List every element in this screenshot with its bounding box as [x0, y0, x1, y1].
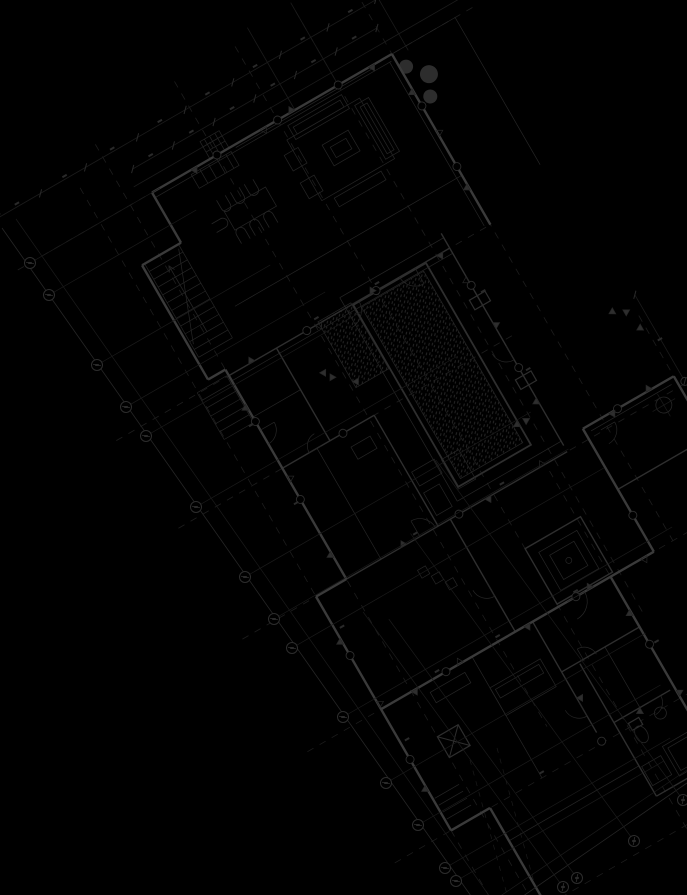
door-swing-icon [492, 346, 514, 368]
node-circle-icon [451, 161, 462, 172]
stair-stringer [227, 376, 254, 423]
furniture-rect [330, 138, 352, 157]
furniture-rect [300, 175, 323, 199]
dim-text-smudge [539, 770, 544, 774]
dimension-line [0, 0, 428, 222]
wall-thin [200, 169, 208, 183]
wall-thin [390, 62, 485, 226]
chair-icon [234, 226, 250, 244]
grid-extension-line [445, 738, 670, 868]
door-arrow-icon [462, 184, 471, 193]
door-arrow-icon [320, 369, 329, 378]
stair-tread [215, 407, 244, 424]
stair-tread [149, 252, 183, 272]
node-circle-icon [338, 428, 349, 439]
wall-medium [276, 348, 330, 441]
door-arrow-icon [635, 708, 644, 717]
dim-tick [324, 23, 332, 31]
grid-line [80, 188, 539, 895]
dim-tick [181, 106, 189, 114]
dim-text-smudge [495, 634, 500, 638]
grid-line [550, 471, 611, 577]
furniture-rect [431, 572, 443, 584]
grid-extension-line [386, 633, 646, 783]
wall-thin [605, 647, 640, 708]
grid-extension-line [363, 612, 563, 887]
wall-medium [580, 664, 657, 797]
wall-thin [155, 61, 391, 198]
wall-thick [674, 376, 687, 499]
wall-thick [225, 370, 346, 580]
dim-text-smudge [157, 119, 162, 123]
plan-group [0, 0, 687, 895]
wall-thick [316, 579, 346, 597]
door-arrow-icon [327, 372, 336, 381]
grid-extension-line [274, 449, 568, 619]
furniture-rect [424, 484, 453, 516]
dim-text-smudge [434, 669, 439, 673]
plant-icon [417, 62, 442, 87]
node-circle-icon [513, 362, 524, 373]
dim-text-smudge [300, 36, 305, 40]
wall-thin [226, 154, 234, 168]
dim-text-smudge [654, 639, 659, 643]
grid-line [327, 0, 673, 541]
door-swing-icon [649, 696, 668, 715]
stair-tread [167, 283, 201, 303]
wall-thin [443, 798, 467, 812]
stair-tread [163, 275, 197, 295]
grid-extension-line [146, 306, 371, 436]
dim-text-smudge [413, 531, 418, 535]
walls [90, 0, 687, 895]
dimension-line [635, 295, 687, 568]
sink-icon [652, 705, 668, 721]
dim-text-smudge [311, 59, 316, 63]
node-circle-icon [211, 150, 222, 161]
dim-text-smudge [110, 146, 115, 150]
furniture-rect [284, 147, 307, 171]
stair-tread [220, 415, 249, 432]
grid-extension-line [30, 188, 160, 263]
wall-thin [253, 390, 301, 418]
dim-text-smudge [205, 91, 210, 95]
dim-string-parallel [493, 770, 687, 895]
door-arrow-icon [635, 324, 644, 333]
wall-medium [656, 761, 687, 796]
node-circle-icon [644, 639, 655, 650]
stair-tread [176, 299, 210, 319]
door-arrow-icon [286, 105, 295, 114]
dim-tick [251, 94, 259, 102]
door-arrow-icon [643, 384, 652, 393]
dim-tick [373, 24, 381, 32]
door-arrow-icon [485, 496, 494, 505]
wall-thin [439, 791, 463, 805]
chair-icon [262, 210, 278, 228]
wall-thick [583, 376, 674, 429]
node-circle-icon [272, 115, 283, 126]
door-swing-icon [565, 702, 587, 724]
courtyard-square [550, 541, 588, 579]
grid-line [639, 316, 687, 554]
grid-extension-line [389, 619, 577, 878]
furniture-rect [495, 664, 543, 698]
courtyard-center [565, 556, 573, 564]
wall-thin [455, 18, 540, 165]
node-circle-icon [596, 736, 607, 747]
door-arrow-icon [246, 355, 255, 364]
grid-extension-line [343, 527, 672, 717]
dim-text-smudge [339, 625, 344, 629]
grid-extension-line [196, 357, 456, 507]
door-arrow-icon [420, 785, 429, 794]
dim-tick [291, 71, 299, 79]
dim-tick [229, 78, 237, 86]
dim-tick [169, 141, 177, 149]
door-arrow-icon [407, 89, 416, 98]
door-arrow-icon [577, 694, 586, 703]
node-circle-icon [333, 80, 344, 91]
door-swing-icon [473, 582, 495, 604]
door-arrow-icon [676, 687, 685, 696]
dim-tick [81, 163, 89, 171]
courtyard-square [525, 517, 612, 604]
dim-text-smudge [252, 64, 257, 68]
wall-thin [447, 805, 471, 819]
wall-thick [316, 597, 451, 831]
wall-thin [236, 68, 375, 148]
dim-tick [36, 189, 44, 197]
dim-text-smudge [62, 174, 67, 178]
dim-text-smudge [314, 316, 319, 320]
grid-extension-line [456, 761, 664, 881]
furniture-rect [351, 436, 377, 459]
stair-stringer [178, 244, 232, 338]
stair-tread [194, 330, 228, 350]
furniture-rect [642, 756, 672, 786]
staircase [128, 244, 274, 439]
door-arrow-icon [524, 623, 533, 632]
node-circle-icon [345, 650, 356, 661]
dim-text-smudge [270, 83, 275, 87]
door-arrow-icon [531, 398, 540, 407]
furniture [134, 21, 687, 863]
dim-text-smudge [189, 130, 194, 134]
dim-text-smudge [526, 367, 531, 371]
construction-lines [0, 0, 687, 829]
dim-text-smudge [293, 501, 298, 505]
stair-tread [202, 384, 231, 401]
stair-tread [224, 423, 253, 440]
door-arrow-icon [335, 638, 344, 647]
door-arrow-icon [369, 64, 378, 73]
cad-floor-plan-screenshot: Dark CAD architectural floor plan, rotat… [0, 0, 687, 895]
dim-text-smudge [499, 481, 504, 485]
stair-tread [211, 399, 240, 416]
dim-tick [129, 165, 137, 173]
stair-stringer [145, 264, 199, 358]
dim-tick [133, 133, 141, 141]
dim-text-smudge [352, 36, 357, 40]
grid-line [95, 144, 569, 895]
wall-thick [451, 808, 490, 831]
wall-thick [392, 54, 491, 225]
wall-thin [392, 18, 455, 55]
door-arrow-icon [584, 582, 593, 591]
door-arrow-icon [493, 320, 502, 329]
plan-dimension-marks [0, 0, 687, 895]
courtyard-square [539, 530, 599, 590]
node-circle-icon [627, 510, 638, 521]
dim-text-smudge [229, 106, 234, 110]
dim-tick [0, 213, 3, 221]
stair-tread [154, 260, 188, 280]
dim-text-smudge [404, 737, 409, 741]
door-arrow-icon [624, 610, 633, 619]
node-circle-icon [405, 754, 416, 765]
dim-tick [332, 47, 340, 55]
door-swing-icon [260, 422, 282, 444]
grid-line [395, 663, 687, 863]
furniture-rect [288, 95, 350, 140]
door-arrow-icon [325, 551, 334, 560]
wall-thick [142, 243, 181, 265]
dim-tick [631, 291, 639, 299]
stair-tread [172, 291, 206, 311]
node-circle-icon [466, 280, 477, 291]
dim-text-smudge [374, 281, 379, 285]
dim-text-smudge [348, 9, 353, 13]
floor-plan-canvas [0, 0, 687, 895]
grid-extension-line [436, 460, 683, 800]
grid-lines [0, 0, 687, 895]
dimension-string-left [2, 188, 672, 895]
door-arrow-icon [623, 307, 632, 316]
wall-thin [217, 159, 225, 173]
dim-text-smudge [148, 153, 153, 157]
dim-tick [276, 51, 284, 59]
dim-tick [210, 118, 218, 126]
wall-thin [435, 784, 459, 798]
furniture-rect [322, 130, 360, 166]
node-circle-icon [301, 325, 312, 336]
wall-thick [152, 193, 181, 243]
door-arrow-icon [437, 252, 446, 261]
stair-tread [190, 322, 224, 342]
stair-tread [199, 338, 233, 358]
stair-tread [206, 391, 235, 408]
grid-extension-line [292, 468, 604, 648]
door-arrow-icon [607, 308, 616, 317]
door-swing-icon [601, 422, 623, 444]
node-circle-icon [441, 666, 452, 677]
dim-text-smudge [14, 201, 19, 205]
furniture-rect [412, 459, 443, 486]
stair-tread [181, 307, 215, 327]
stair-stringer [197, 393, 224, 440]
grid-extension-line [49, 210, 196, 295]
furniture-rect [490, 659, 556, 716]
chair-icon [212, 216, 230, 232]
stair-tread [158, 268, 192, 288]
wall-thin [209, 164, 217, 178]
node-circle-icon [416, 100, 427, 111]
wall-thick [381, 552, 654, 710]
wall-thick [152, 54, 392, 193]
wall-thick [583, 429, 654, 552]
grid-extension-line [245, 412, 531, 577]
